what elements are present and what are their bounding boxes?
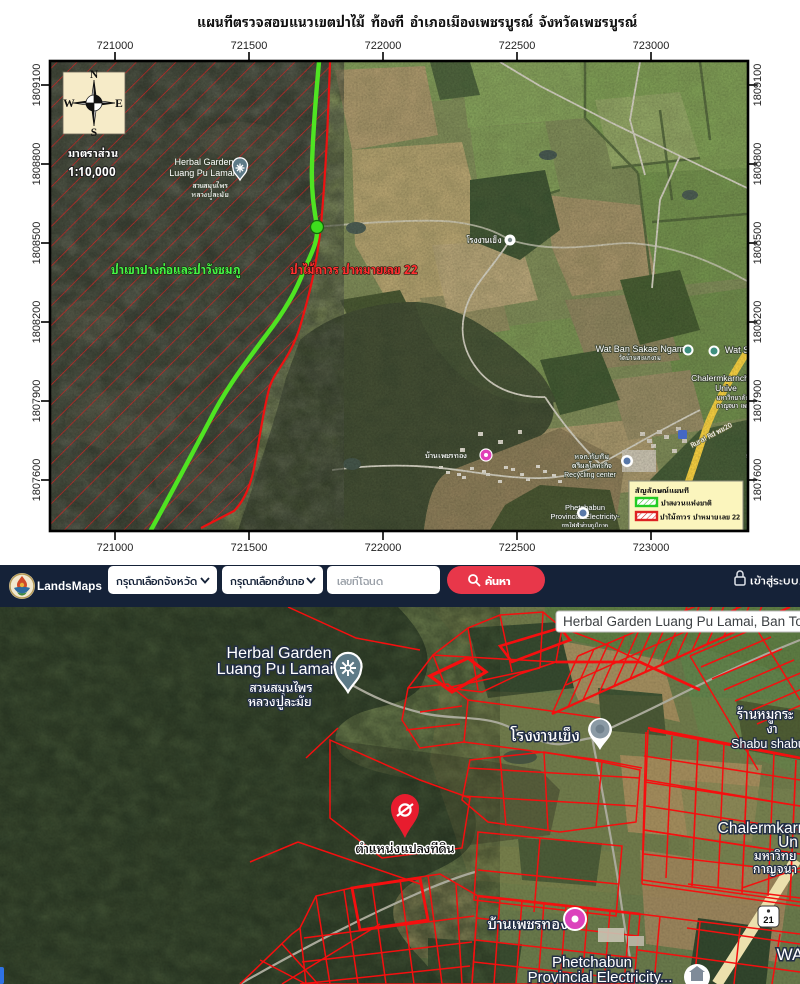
svg-text:Wat Ban Sakae Ngam: Wat Ban Sakae Ngam — [596, 344, 685, 354]
svg-text:722500: 722500 — [499, 542, 536, 554]
svg-text:W: W — [63, 98, 75, 110]
svg-text:721000: 721000 — [97, 40, 134, 52]
svg-text:723000: 723000 — [633, 40, 670, 52]
svg-text:722000: 722000 — [365, 542, 402, 554]
svg-text:E: E — [115, 98, 123, 110]
svg-text:1808500: 1808500 — [31, 222, 43, 265]
svg-text:1809100: 1809100 — [31, 64, 43, 107]
svg-text:1807900: 1807900 — [31, 380, 43, 423]
svg-text:Unive: Unive — [715, 383, 737, 393]
svg-text:Herbal Garden: Herbal Garden — [174, 157, 233, 167]
svg-text:721500: 721500 — [231, 542, 268, 554]
svg-text:1808200: 1808200 — [31, 301, 43, 344]
svg-text:1807600: 1807600 — [31, 459, 43, 502]
svg-text:1809100: 1809100 — [752, 64, 764, 107]
svg-text:722000: 722000 — [365, 40, 402, 52]
svg-text:21: 21 — [763, 915, 774, 926]
svg-text:Herbal Garden: Herbal Garden — [227, 645, 332, 662]
svg-text:Chalermkarnch: Chalermkarnch — [691, 373, 749, 383]
svg-text:Herbal Garden Luang Pu Lamai,: Herbal Garden Luang Pu Lamai, Ban Tok, — [563, 614, 800, 629]
svg-text:1808800: 1808800 — [31, 143, 43, 186]
svg-text:1808800: 1808800 — [752, 143, 764, 186]
svg-text:N: N — [90, 69, 99, 81]
svg-text:1807900: 1807900 — [752, 380, 764, 423]
svg-text:721000: 721000 — [97, 542, 134, 554]
svg-text:S: S — [91, 127, 97, 139]
svg-text:721500: 721500 — [231, 40, 268, 52]
svg-text:1808200: 1808200 — [752, 301, 764, 344]
svg-text:723000: 723000 — [633, 542, 670, 554]
svg-text:722500: 722500 — [499, 40, 536, 52]
svg-text:Shabu shabu: Shabu shabu — [731, 737, 800, 751]
svg-text:Provincial Electricity...: Provincial Electricity... — [528, 969, 673, 984]
svg-text:Un: Un — [778, 834, 798, 851]
svg-text:1808500: 1808500 — [752, 222, 764, 265]
svg-text:1807600: 1807600 — [752, 459, 764, 502]
svg-text:Luang Pu Lamai: Luang Pu Lamai — [217, 661, 334, 678]
svg-text:WA: WA — [777, 945, 800, 964]
svg-text:Luang Pu Lamai: Luang Pu Lamai — [169, 168, 235, 178]
svg-text:Wat S: Wat S — [725, 345, 749, 355]
svg-text:Recycling center: Recycling center — [564, 472, 616, 479]
